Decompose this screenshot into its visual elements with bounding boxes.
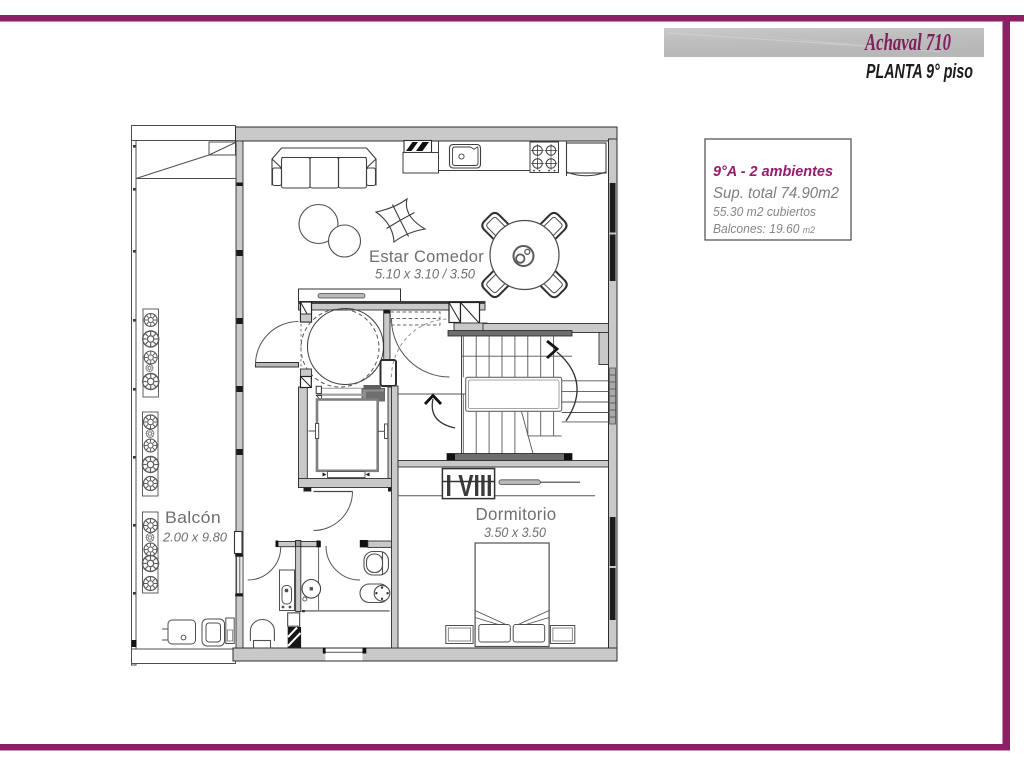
- svg-text:Balcón: Balcón: [165, 508, 221, 527]
- svg-text:Sup. total 74.90m2: Sup. total 74.90m2: [713, 185, 839, 202]
- svg-text:Dormitorio: Dormitorio: [476, 504, 557, 524]
- svg-text:Balcones: 19.60 m2: Balcones: 19.60 m2: [713, 221, 816, 236]
- svg-text:5.10 x 3.10 / 3.50: 5.10 x 3.10 / 3.50: [375, 267, 475, 282]
- svg-text:55.30 m2 cubiertos: 55.30 m2 cubiertos: [713, 204, 816, 219]
- svg-text:Estar Comedor: Estar Comedor: [369, 247, 484, 266]
- svg-text:I VIII: I VIII: [446, 468, 493, 503]
- svg-text:2.00 x 9.80: 2.00 x 9.80: [162, 530, 228, 545]
- svg-text:3.50 x 3.50: 3.50 x 3.50: [484, 525, 546, 540]
- svg-text:Achaval 710: Achaval 710: [864, 30, 951, 56]
- svg-text:9°A - 2 ambientes: 9°A - 2 ambientes: [713, 164, 833, 180]
- svg-text:PLANTA 9° piso: PLANTA 9° piso: [866, 61, 973, 83]
